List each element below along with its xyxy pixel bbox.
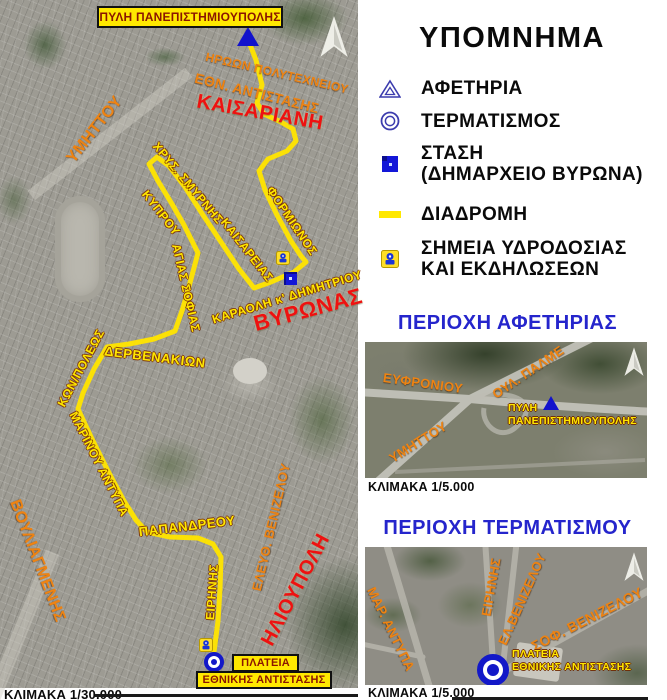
map-label-ymittou: ΥΜΗΤΤΟΥ (63, 93, 126, 167)
inset-finish-scale: ΚΛΙΜΑΚΑ 1/5.000 (368, 686, 475, 700)
stop-square-icon (372, 155, 408, 174)
map-label-kyprou: ΚΥΠΡΟΥ (139, 188, 183, 239)
start-gate-label-box: ΠΥΛΗ ΠΑΝΕΠΙΣΤΗΜΙΟΥΠΟΛΗΣ (97, 6, 283, 28)
finish-square-label-box-line2: ΕΘΝΙΚΗΣ ΑΝΤΙΣΤΑΣΗΣ (196, 671, 332, 689)
legend-item-finish: ΤΕΡΜΑΤΙΣΜΟΣ (372, 110, 561, 132)
map-label-oul-palme: ΟΥΛ. ΠΑΛΜΕ (489, 343, 566, 402)
legend-item-stop: ΣΤΑΣΗ (ΔΗΜΑΡΧΕΙΟ ΒΥΡΩΝΑ) (372, 143, 643, 185)
map-label-dervenakion: ΔΕΡΒΕΝΑΚΙΩΝ (104, 343, 207, 370)
legend-item-start: ΑΦΕΤΗΡΙΑ (372, 78, 523, 99)
gate-place-label: ΠΥΛΗ ΠΑΝΕΠΙΣΤΗΜΙΟΥΠΟΛΗΣ (508, 402, 637, 427)
map-label-agias-sofias: ΑΓΙΑΣ ΣΟΦΙΑΣ (169, 243, 203, 334)
inset-finish-map: ΜΑΡ. ΑΝΤΥΠΑΕΙΡΗΝΗΣΕΛ.ΒΕΝΙΖΕΛΟΥΣΟΦ. ΒΕΝΙΖ… (365, 547, 647, 685)
divider-line (95, 694, 358, 697)
map-label-kaisareias: ΚΑΙΣΑΡΕΙΑΣ (218, 215, 276, 284)
north-compass-icon (318, 15, 350, 59)
north-compass-icon (623, 346, 645, 378)
legend-label-start: ΑΦΕΤΗΡΙΑ (421, 78, 523, 99)
main-map: ΥΜΗΤΤΟΥΗΡΩΩΝ ΠΟΛΥΤΕΧΝΕΙΟΥΕΘΝ. ΑΝΤΙΣΤΑΣΗΣ… (0, 0, 358, 688)
water-point-marker (276, 251, 290, 270)
legend-label-stop: ΣΤΑΣΗ (ΔΗΜΑΡΧΕΙΟ ΒΥΡΩΝΑ) (421, 143, 643, 185)
map-label-marinou-antypa: ΜΑΡΙΝΟΥ ΑΝΤΥΠΑ (67, 409, 132, 518)
map-label-eirinis: ΕΙΡΗΝΗΣ (203, 564, 221, 621)
map-label-formionos: ΦΟΡΜΙΩΝΟΣ (264, 184, 320, 258)
legend-item-water: ΣΗΜΕΙΑ ΥΔΡΟΔΟΣΙΑΣ ΚΑΙ ΕΚΔΗΛΩΣΕΩΝ (372, 238, 627, 280)
map-label-ymittou: ΥΜΗΤΤΟΥ (386, 418, 449, 465)
map-label-mar-antypa: ΜΑΡ. ΑΝΤΥΠΑ (365, 585, 418, 674)
inset-start-title: ΠΕΡΙΟΧΗ ΑΦΕΤΗΡΙΑΣ (365, 312, 650, 335)
map-label-papandreou: ΠΑΠΑΝΔΡΕΟΥ (138, 513, 236, 540)
north-compass-icon (623, 551, 645, 583)
inset-start-scale: ΚΛΙΜΑΚΑ 1/5.000 (368, 480, 475, 494)
street-labels-layer: ΥΜΗΤΤΟΥΗΡΩΩΝ ΠΟΛΥΤΕΧΝΕΙΟΥΕΘΝ. ΑΝΤΙΣΤΑΣΗΣ… (0, 0, 358, 688)
finish-circles-icon (372, 110, 408, 132)
square-place-label: ΠΛΑΤΕΙΑ ΕΘΝΙΚΗΣ ΑΝΤΙΣΤΑΣΗΣ (512, 648, 631, 673)
legend-label-finish: ΤΕΡΜΑΤΙΣΜΟΣ (421, 111, 561, 132)
finish-marker (204, 652, 224, 672)
map-label-kon-poleos: ΚΩΝ/ΠΟΛΕΩΣ (55, 327, 108, 409)
route-map-poster: ΥΜΗΤΤΟΥΗΡΩΩΝ ΠΟΛΥΤΕΧΝΕΙΟΥΕΘΝ. ΑΝΤΙΣΤΑΣΗΣ… (0, 0, 667, 700)
legend-title: ΥΠΟΜΝΗΜΑ (360, 22, 664, 55)
map-label-vouliagmenis: ΒΟΥΛΙΑΓΜΕΝΗΣ (5, 497, 68, 624)
map-label-eyfroniou: ΕΥΦΡΟΝΙΟΥ (382, 370, 464, 396)
start-triangle-icon (372, 79, 408, 99)
legend-label-route: ΔΙΑΔΡΟΜΗ (421, 204, 528, 225)
inset-start-map: ΕΥΦΡΟΝΙΟΥΟΥΛ. ΠΑΛΜΕΥΜΗΤΤΟΥ ΠΥΛΗ ΠΑΝΕΠΙΣΤ… (365, 342, 647, 478)
legend-label-water: ΣΗΜΕΙΑ ΥΔΡΟΔΟΣΙΑΣ ΚΑΙ ΕΚΔΗΛΩΣΕΩΝ (421, 238, 627, 280)
route-line-icon (372, 211, 408, 218)
finish-square-label-box-line1: ΠΛΑΤΕΙΑ (232, 654, 299, 672)
inset-finish-title: ΠΕΡΙΟΧΗ ΤΕΡΜΑΤΙΣΜΟΥ (365, 517, 650, 540)
map-label-eleyth-venizelou: ΕΛΕΥΘ. ΒΕΝΙΖΕΛΟΥ (249, 462, 293, 593)
stop-station-marker (284, 272, 297, 285)
map-label-eirinis: ΕΙΡΗΝΗΣ (478, 557, 503, 618)
map-label-sof-venizelou: ΣΟΦ. ΒΕΝΙΖΕΛΟΥ (529, 584, 646, 654)
water-point-icon (372, 250, 408, 268)
start-triangle-marker (237, 27, 259, 46)
finish-marker (477, 654, 509, 685)
legend-item-route: ΔΙΑΔΡΟΜΗ (372, 204, 528, 225)
